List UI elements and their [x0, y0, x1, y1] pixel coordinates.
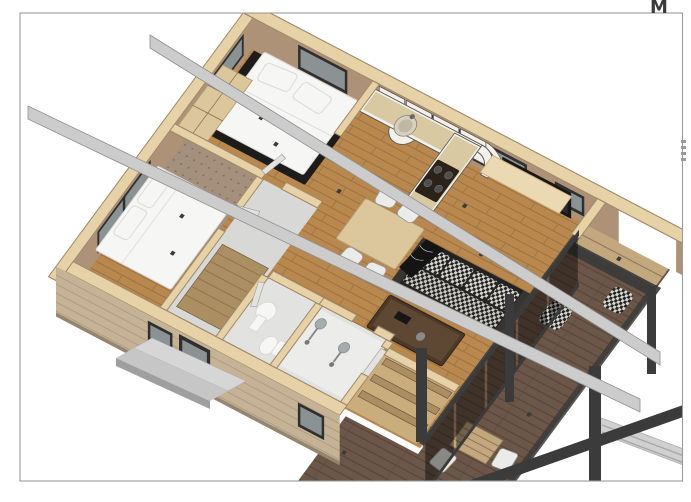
drawing-sheet: M [0, 0, 691, 502]
floorplan-rendering: M [0, 0, 691, 502]
scene [16, 3, 691, 502]
edge-stamp [681, 140, 686, 161]
corner-letter: M [650, 0, 668, 18]
pergola-post [416, 348, 427, 442]
